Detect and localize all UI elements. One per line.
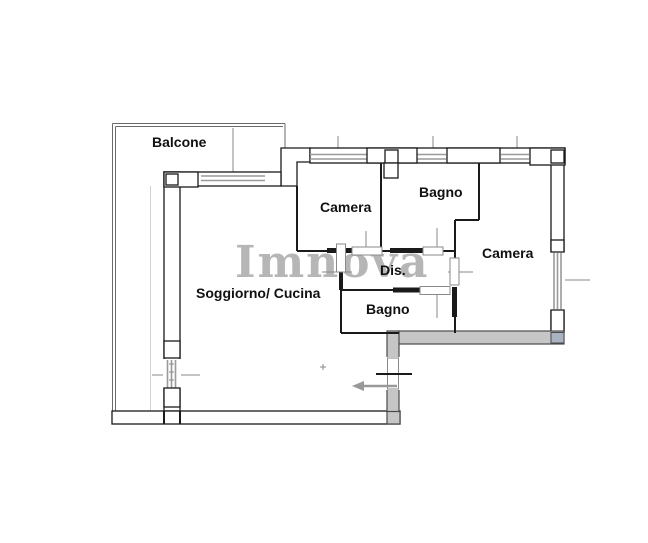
- room-label-camera-top: Camera: [320, 200, 371, 214]
- room-label-dis: Dis.: [380, 263, 406, 277]
- room-label-balcone: Balcone: [152, 135, 206, 149]
- window-left-wall: [163, 359, 181, 388]
- room-label-camera-right: Camera: [482, 246, 533, 260]
- window-top-1: [310, 149, 367, 162]
- window-top-2: [417, 149, 446, 162]
- window-top-3: [501, 149, 529, 162]
- room-label-bagno-bottom: Bagno: [366, 302, 410, 316]
- window-balcony: [201, 173, 265, 185]
- gray-walls: [385, 331, 564, 424]
- floor-plan: Imnova: [0, 0, 648, 543]
- wall-pillars: [164, 148, 565, 407]
- balcony-outline: [113, 124, 286, 412]
- room-label-soggiorno: Soggiorno/ Cucina: [196, 286, 320, 300]
- window-right-wall: [550, 252, 565, 310]
- room-label-bagno-top: Bagno: [419, 185, 463, 199]
- floor-plan-drawing: [0, 0, 648, 543]
